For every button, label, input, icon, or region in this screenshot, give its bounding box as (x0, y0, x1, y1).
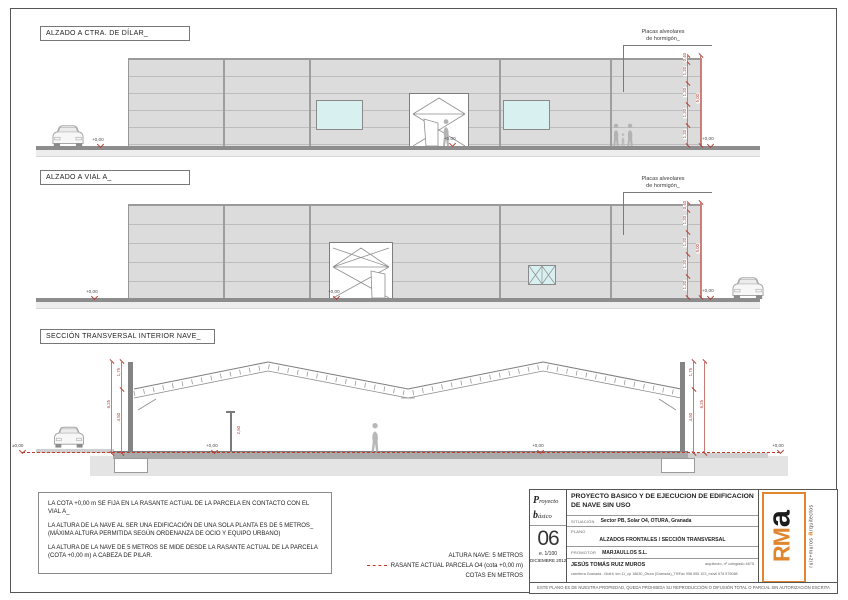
leader-line (623, 192, 712, 193)
elevation2-facade (128, 204, 702, 301)
legend-rasante: RASANTE ACTUAL PARCELA O4 (cota +0,00 m) (333, 561, 523, 571)
dimension-chain: 0,40 1,20 1,20 1,20 1,20 (684, 203, 692, 298)
leader-line (623, 192, 624, 235)
brand-logo: Proyecto básico (530, 490, 566, 526)
car-icon (52, 424, 86, 449)
titleblock-left-column: Proyecto básico 06 e. 1/100 DICIEMBRE 20… (530, 490, 567, 582)
reference-pole-cap (226, 411, 235, 413)
plano-row: PLANO ALZADOS FRONTALES / SECCIÓN TRANSV… (567, 526, 758, 546)
dimension-total: 6,25 (701, 362, 709, 454)
pole-dimension: 2,50 (237, 425, 241, 435)
legend-cotas: COTAS EN METROS (333, 571, 523, 581)
reference-pole (230, 412, 232, 452)
promotor-value: MARJAULLOS S.L. (602, 550, 647, 556)
dimension-total: 5,00 (697, 203, 705, 298)
plano-value: ALZADOS FRONTALES / SECCIÓN TRANSVERSAL (567, 537, 758, 543)
window-brace-icon (529, 266, 555, 284)
view-title-label: ALZADO A CTRA. DE DÍLAR_ (46, 30, 148, 37)
annotation-placas: Placas alveolares de hormigón_ (618, 176, 708, 189)
promotor-label: PROMOTOR (571, 550, 596, 555)
dimension-chain: 1,75 4,50 (690, 362, 698, 454)
panel-joint (309, 60, 311, 148)
copyright-disclaimer: ESTE PLANO ES DE NUESTRA PROPIEDAD, QUED… (530, 582, 837, 593)
roof-truss (118, 355, 693, 460)
level-mark: +0,00 (86, 289, 98, 294)
dashed-line-swatch (367, 565, 387, 566)
drawing-sheet: ALZADO A CTRA. DE DÍLAR_ +0,00 +0,00 (0, 0, 848, 600)
promotor-row: PROMOTOR MARJAULLOS S.L. (567, 546, 758, 558)
rasante-dashed-line (22, 452, 780, 453)
person-icon (368, 425, 382, 452)
drawing-scale: e. 1/100 (530, 551, 566, 557)
panel-joint (309, 206, 311, 300)
legend: ALTURA NAVE: 5 METROS RASANTE ACTUAL PAR… (333, 551, 523, 581)
view-title-section: SECCIÓN TRANSVERSAL INTERIOR NAVE_ (40, 329, 215, 344)
section-column-right (680, 362, 685, 452)
level-mark: +0,00 (328, 289, 340, 294)
studio-logo-cell: RMa ruiz+muros arquitectos (759, 490, 836, 582)
architect-name: JESÚS TOMÁS RUIZ MUROS (571, 562, 645, 568)
panel-joint (499, 60, 501, 148)
leader-line (623, 45, 624, 92)
window (316, 100, 363, 130)
window (528, 265, 556, 285)
ground-fill (36, 302, 760, 309)
view-title-elevation-2: ALZADO A VIAL A_ (40, 170, 190, 185)
situacion-row: SITUACIÓN Sector PB, Solar O4, OTURA, Gr… (567, 515, 758, 526)
project-title: PROYECTO BASICO Y DE EJECUCION DE EDIFIC… (567, 490, 758, 515)
titleblock-main: PROYECTO BASICO Y DE EJECUCION DE EDIFIC… (567, 490, 759, 582)
main-gate (409, 93, 469, 149)
panel-joint (223, 206, 225, 300)
view-title-elevation-1: ALZADO A CTRA. DE DÍLAR_ (40, 26, 190, 41)
dimension-chain: 0,40 1,20 1,20 1,20 1,20 (684, 56, 692, 146)
footing (114, 458, 148, 473)
notes-box: LA COTA +0,00 m SE FIJA EN LA RASANTE AC… (38, 492, 332, 574)
level-mark: +0,00 (444, 136, 456, 141)
panel-joint (223, 60, 225, 148)
panel-joint (499, 206, 501, 300)
level-mark: +0,00 (92, 137, 104, 142)
section-column-left (128, 362, 133, 452)
legend-altura: ALTURA NAVE: 5 METROS (333, 551, 523, 561)
section-apron-right (688, 453, 768, 458)
note: LA ALTURA DE LA NAVE AL SER UNA EDIFICAC… (48, 522, 322, 538)
annotation-placas: Placas alveolares de hormigón_ (618, 29, 708, 42)
drawing-date: DICIEMBRE 2012 (530, 558, 566, 563)
studio-logo-subtext: ruiz+muros arquitectos (806, 493, 816, 580)
architect-row: JESÚS TOMÁS RUIZ MUROS arquitecto, nº co… (567, 558, 758, 585)
dimension-total: 5,00 (697, 56, 705, 146)
situacion-label: SITUACIÓN (571, 519, 595, 524)
view-title-label: ALZADO A VIAL A_ (46, 174, 112, 181)
title-block: Proyecto básico 06 e. 1/100 DICIEMBRE 20… (529, 489, 838, 594)
people-icon (608, 125, 640, 146)
dimension-chain: 1,75 4,50 (118, 362, 126, 454)
level-mark: +0,00 (206, 443, 218, 448)
architect-contact: carretera Granada - Motril, km 11_cp 186… (571, 572, 754, 576)
person-icon (443, 119, 449, 146)
panel-joint (610, 206, 612, 300)
note: LA ALTURA DE LA NAVE DE 5 METROS SE MIDE… (48, 544, 322, 560)
sheet-number: 06 (530, 527, 566, 550)
situacion-value: Sector PB, Solar O4, OTURA, Granada (601, 518, 692, 524)
dimension-total: 6,25 (108, 362, 116, 454)
plano-label: PLANO (571, 529, 586, 534)
level-mark: +0,00 (772, 443, 784, 448)
ground-fill (36, 150, 760, 157)
note: LA COTA +0,00 m SE FIJA EN LA RASANTE AC… (48, 500, 322, 516)
leader-line (623, 45, 712, 46)
car-icon (50, 124, 86, 147)
window (503, 100, 550, 130)
footing (661, 458, 695, 473)
gate-brace-icon (410, 94, 468, 148)
level-mark: +0,00 (532, 443, 544, 448)
car-icon (730, 276, 766, 299)
studio-logo: RMa (762, 493, 802, 580)
view-title-label: SECCIÓN TRANSVERSAL INTERIOR NAVE_ (46, 333, 201, 340)
architect-credentials: arquitecto, nº colegiado 4675 (705, 562, 754, 566)
